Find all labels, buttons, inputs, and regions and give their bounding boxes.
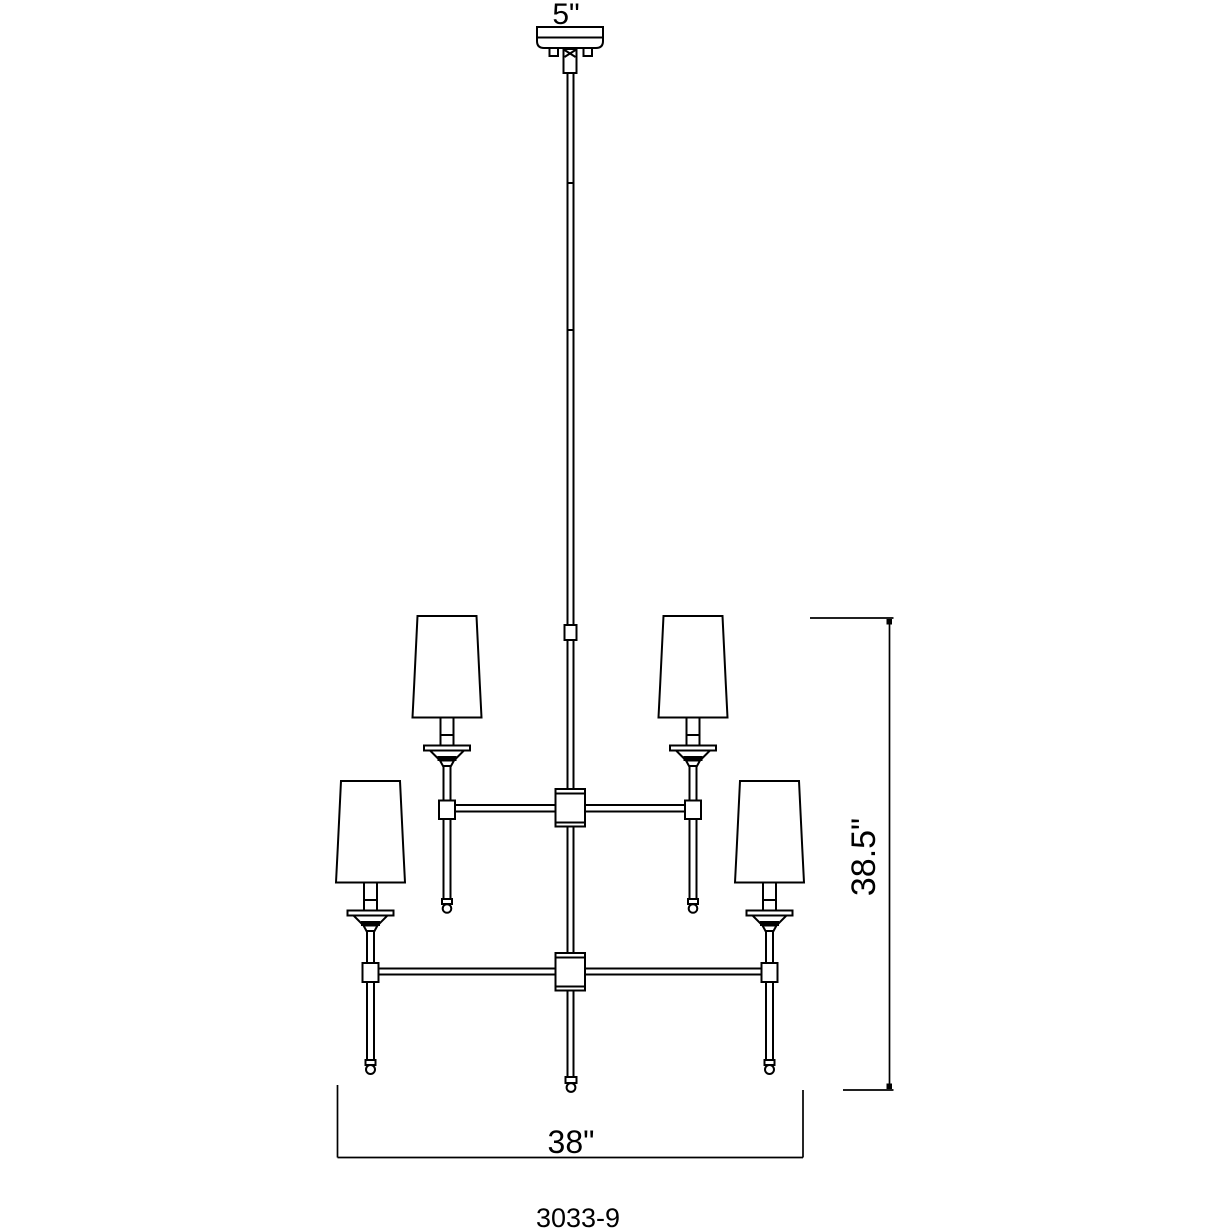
lower-right-lamp-column bbox=[762, 931, 778, 1074]
upper-left-lamp-shade bbox=[413, 616, 482, 766]
ball-finial bbox=[689, 904, 698, 913]
canopy-width-label: 5" bbox=[552, 0, 579, 31]
ball-finial bbox=[765, 1065, 774, 1074]
drawing-page: 5" 38.5" 38" 3033-9 bbox=[0, 0, 1232, 1232]
arm-junction-block bbox=[762, 963, 778, 982]
dimension-height: 38.5" bbox=[810, 618, 894, 1090]
arm-junction-block bbox=[439, 801, 455, 820]
fixture-width-label: 38" bbox=[548, 1124, 595, 1160]
upper-left-lamp-column bbox=[439, 766, 455, 913]
chandelier-dimension-drawing: 5" 38.5" 38" 3033-9 bbox=[0, 0, 1232, 1232]
upper-tier bbox=[413, 616, 728, 913]
dimension-canopy-width: 5" bbox=[552, 0, 579, 31]
lower-hub bbox=[556, 953, 586, 991]
canopy-screw bbox=[584, 48, 593, 56]
fixture-height-label: 38.5" bbox=[845, 818, 883, 896]
arm-junction-block bbox=[685, 801, 701, 820]
arm-junction-block bbox=[363, 963, 379, 982]
rod-ball-finial bbox=[567, 1083, 576, 1092]
lower-right-lamp-shade bbox=[735, 781, 804, 931]
ball-finial bbox=[366, 1065, 375, 1074]
upper-hub bbox=[556, 789, 586, 827]
hanging-rod bbox=[565, 73, 577, 1092]
upper-right-lamp-column bbox=[685, 766, 701, 913]
canopy-screw bbox=[550, 48, 559, 56]
lower-left-lamp-column bbox=[363, 931, 379, 1074]
dimension-width: 38" bbox=[338, 1085, 804, 1160]
model-number: 3033-9 bbox=[536, 1203, 620, 1232]
rod-end-cap bbox=[566, 1077, 577, 1083]
lower-left-lamp-shade bbox=[336, 781, 405, 931]
rod-coupler bbox=[565, 625, 577, 640]
ceiling-canopy bbox=[537, 27, 603, 73]
ball-finial bbox=[443, 904, 452, 913]
upper-right-lamp-shade bbox=[659, 616, 728, 766]
